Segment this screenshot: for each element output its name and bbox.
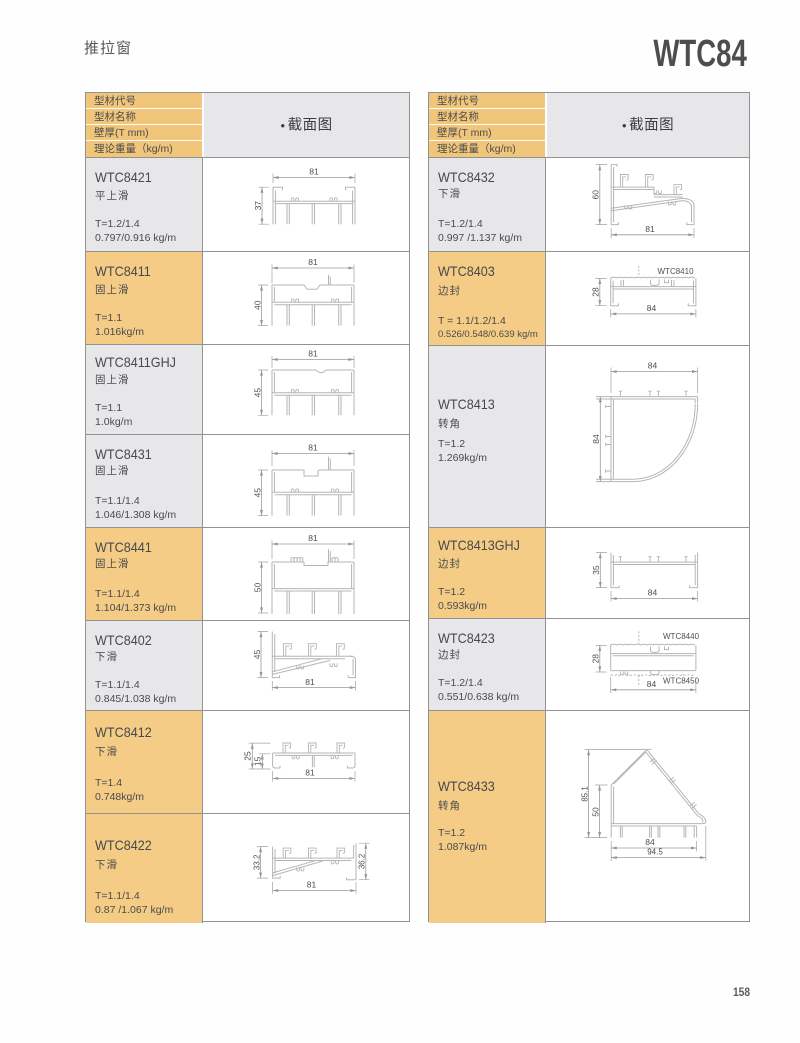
svg-text:81: 81 bbox=[645, 224, 655, 234]
svg-text:WTC8450: WTC8450 bbox=[663, 677, 700, 686]
svg-text:81: 81 bbox=[308, 257, 318, 267]
svg-text:84: 84 bbox=[591, 434, 601, 444]
svg-text:81: 81 bbox=[307, 880, 317, 890]
svg-text:84: 84 bbox=[647, 303, 657, 313]
svg-text:45: 45 bbox=[252, 488, 262, 498]
svg-text:84: 84 bbox=[645, 837, 655, 847]
svg-text:81: 81 bbox=[305, 677, 315, 687]
svg-text:28: 28 bbox=[591, 654, 601, 664]
svg-text:37: 37 bbox=[253, 201, 263, 211]
svg-text:60: 60 bbox=[591, 190, 601, 200]
svg-text:50: 50 bbox=[590, 807, 600, 817]
svg-text:81: 81 bbox=[309, 167, 319, 177]
svg-text:81: 81 bbox=[305, 768, 315, 778]
svg-text:50: 50 bbox=[252, 583, 262, 593]
svg-text:WTC8410: WTC8410 bbox=[658, 267, 695, 276]
svg-text:40: 40 bbox=[252, 300, 262, 310]
svg-text:45: 45 bbox=[252, 388, 262, 398]
svg-text:45: 45 bbox=[252, 650, 262, 660]
svg-text:WTC8440: WTC8440 bbox=[663, 632, 700, 641]
svg-text:84: 84 bbox=[648, 588, 658, 598]
svg-text:81: 81 bbox=[308, 533, 318, 543]
svg-text:36.2: 36.2 bbox=[357, 853, 366, 869]
svg-text:81: 81 bbox=[308, 349, 318, 359]
svg-text:33.2: 33.2 bbox=[252, 854, 261, 870]
svg-text:35: 35 bbox=[591, 565, 601, 575]
svg-text:84: 84 bbox=[647, 679, 657, 689]
svg-text:84: 84 bbox=[648, 361, 658, 371]
svg-text:81: 81 bbox=[308, 443, 318, 453]
svg-text:15: 15 bbox=[253, 756, 263, 766]
svg-text:94.5: 94.5 bbox=[647, 848, 663, 857]
svg-text:25: 25 bbox=[242, 751, 252, 761]
svg-text:85.1: 85.1 bbox=[580, 786, 589, 802]
svg-text:28: 28 bbox=[591, 287, 601, 297]
